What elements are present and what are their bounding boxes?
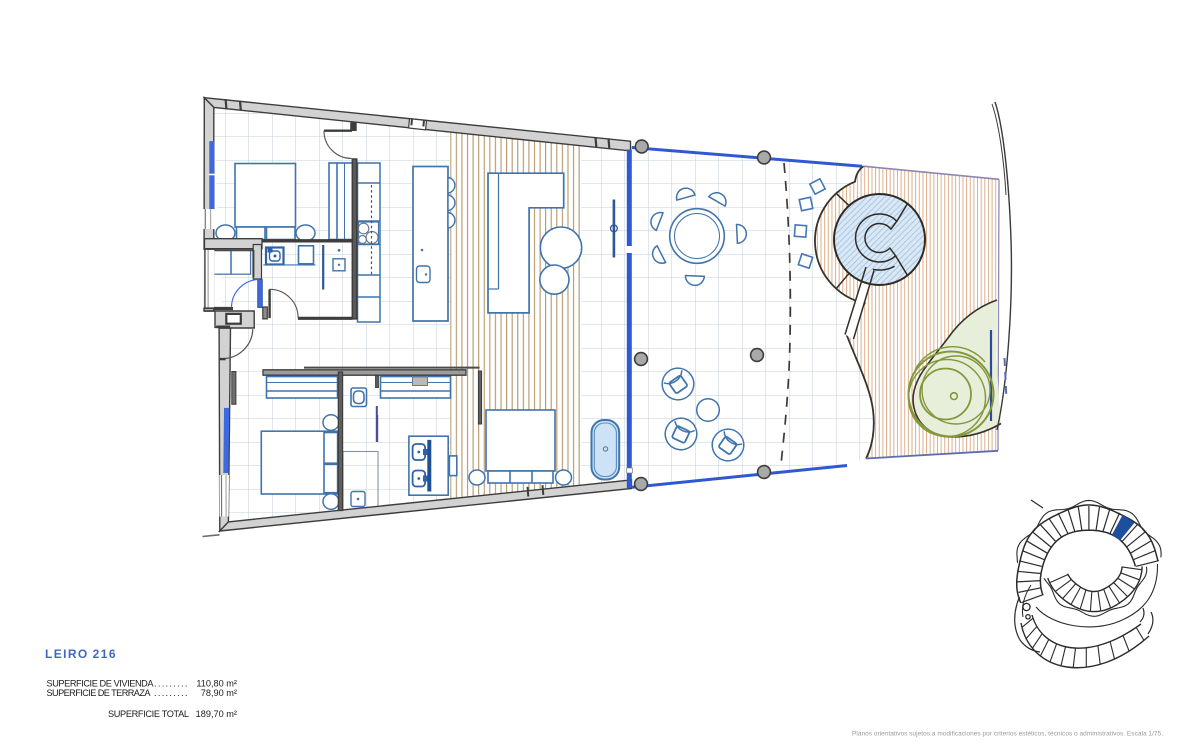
svg-text:.........: ......... <box>154 688 189 698</box>
svg-text:189,70 m²: 189,70 m² <box>196 709 237 719</box>
svg-text:Planos orientativos sujetos a: Planos orientativos sujetos a modificaci… <box>852 731 1163 738</box>
svg-text:SUPERFICIE TOTAL: SUPERFICIE TOTAL <box>108 709 189 719</box>
svg-text:78,90 m²: 78,90 m² <box>201 688 237 698</box>
svg-text:LEIRO216: LEIRO216 <box>45 647 117 661</box>
svg-text:SUPERFICIE DE TERRAZA: SUPERFICIE DE TERRAZA <box>47 688 152 698</box>
